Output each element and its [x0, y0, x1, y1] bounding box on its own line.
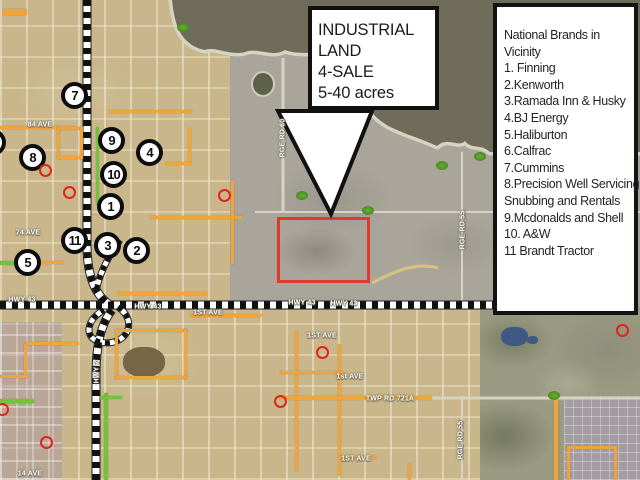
callout-line: 4-SALE: [318, 62, 433, 83]
numbered-marker-5: 5: [14, 249, 41, 276]
tree-marker: [177, 23, 189, 32]
red-circle-marker: [616, 324, 629, 337]
road-label: 1ST AVE: [307, 333, 337, 340]
road-label: HWY 43: [330, 301, 357, 308]
road-label: 14 AVE: [18, 471, 43, 478]
numbered-marker-4: 4: [136, 139, 163, 166]
tree-marker: [474, 152, 486, 161]
brands-line: 5.Haliburton: [504, 127, 632, 144]
industrial-land-callout: INDUSTRIALLAND4-SALE5-40 acres: [308, 6, 439, 110]
red-circle-marker: [63, 186, 76, 199]
brands-line: 6.Calfrac: [504, 143, 632, 160]
road-label: RGE RD 55: [458, 421, 465, 460]
tree-marker: [296, 191, 308, 200]
road-label: 84 AVE: [28, 122, 53, 129]
numbered-marker-3: 3: [94, 232, 121, 259]
brands-line: 11 Brandt Tractor: [504, 243, 632, 260]
road-label: RGE RD 60: [280, 119, 287, 158]
brands-line: 1. Finning: [504, 60, 632, 77]
brands-line: Vicinity: [504, 44, 632, 61]
numbered-marker-9: 9: [98, 127, 125, 154]
brands-line: 9.Mcdonalds and Shell: [504, 210, 632, 227]
road-label: TWP RD 721A: [366, 396, 414, 403]
road-label: RGE RD 55: [460, 211, 467, 250]
road-label: 1st AVE: [336, 374, 363, 381]
brands-line: 2.Kenworth: [504, 77, 632, 94]
tree-marker: [362, 206, 374, 215]
brands-line: 7.Cummins: [504, 160, 632, 177]
numbered-marker-2: 2: [123, 237, 150, 264]
callout-line: 5-40 acres: [318, 83, 433, 104]
brands-line: National Brands in: [504, 27, 632, 44]
numbered-marker-10: 10: [100, 161, 127, 188]
callout-line: LAND: [318, 41, 433, 62]
callout-line: INDUSTRIAL: [318, 20, 433, 41]
brands-line: 10. A&W: [504, 226, 632, 243]
red-circle-marker: [40, 436, 53, 449]
road-label: HWY 43: [8, 297, 35, 304]
road-label: 74 AVE: [16, 230, 41, 237]
national-brands-box: National Brands inVicinity1. Finning2.Ke…: [493, 3, 638, 315]
numbered-marker-7: 7: [61, 82, 88, 109]
red-circle-marker: [218, 189, 231, 202]
road-label: 1ST AVE: [341, 456, 371, 463]
red-circle-marker: [274, 395, 287, 408]
tree-marker: [436, 161, 448, 170]
numbered-marker-11: 11: [61, 227, 88, 254]
brands-line: 8.Precision Well Servicing: [504, 176, 632, 193]
aerial-map: 789410111325684 AVE74 AVEHWY 43HWY 43HWY…: [0, 0, 640, 480]
red-circle-marker: [316, 346, 329, 359]
red-circle-marker: [39, 164, 52, 177]
road-label: 1ST AVE: [193, 310, 223, 317]
brands-line: 3.Ramada Inn & Husky: [504, 93, 632, 110]
down-arrow: [278, 111, 372, 214]
tree-marker: [548, 391, 560, 400]
road-label: HWY 43: [134, 304, 161, 311]
brands-line: 4.BJ Energy: [504, 110, 632, 127]
road-label: HWY 2: [94, 360, 101, 383]
brands-line: Snubbing and Rentals: [504, 193, 632, 210]
numbered-marker-1: 1: [97, 193, 124, 220]
road-label: HWY 43: [288, 300, 315, 307]
